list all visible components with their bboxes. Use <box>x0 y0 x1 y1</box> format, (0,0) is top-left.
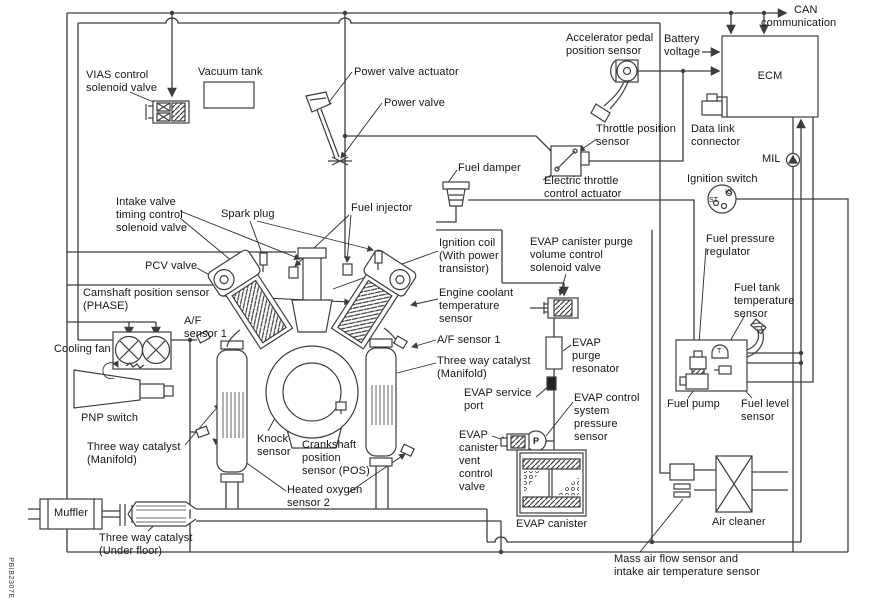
label-can-communication: CAN communication <box>761 4 836 30</box>
label-spark-plug: Spark plug <box>221 208 275 221</box>
fuel-damper-icon <box>443 182 469 206</box>
three-way-catalyst-underfloor-icon <box>128 502 196 526</box>
label-throttle-position-sensor: Throttle position sensor <box>596 123 676 149</box>
label-fuel-tank-temperature-sensor: Fuel tank temperature sensor <box>734 282 794 321</box>
mass-air-flow-sensor-icon <box>670 464 694 497</box>
electric-throttle-actuator-icon <box>551 146 589 176</box>
label-muffler: Muffler <box>54 507 88 520</box>
power-valve-actuator-icon <box>306 92 339 158</box>
evap-purge-resonator-icon <box>546 337 562 369</box>
label-fuel-injector: Fuel injector <box>351 202 412 215</box>
vias-solenoid-valve-icon <box>146 101 189 123</box>
label-evap-purge-volume-solenoid: EVAP canister purge volume control solen… <box>530 236 633 275</box>
evap-service-port-icon <box>547 377 556 390</box>
label-three-way-catalyst-under-floor: Three way catalyst (Under floor) <box>99 532 193 558</box>
label-cooling-fan: Cooling fan <box>54 343 111 356</box>
label-camshaft-position-sensor: Camshaft position sensor (PHASE) <box>83 287 210 313</box>
three-way-catalyst-right-icon <box>366 339 396 466</box>
label-fuel-pump: Fuel pump <box>667 398 720 411</box>
label-af-sensor-1-right: A/F sensor 1 <box>437 334 501 347</box>
air-cleaner-icon <box>694 456 788 512</box>
label-ig: IG <box>725 189 733 197</box>
vacuum-tank-icon <box>204 82 254 108</box>
label-intake-valve-timing-control: Intake valve timing control solenoid val… <box>116 196 187 235</box>
power-valve-icon <box>328 157 352 165</box>
label-fuel-level-sensor: Fuel level sensor <box>741 398 789 424</box>
evap-vent-valve-icon <box>501 434 529 450</box>
label-ignition-coil: Ignition coil (With power transistor) <box>439 237 499 276</box>
label-mass-air-flow-sensor: Mass air flow sensor and intake air temp… <box>614 553 760 579</box>
label-p-symbol: P <box>533 436 539 446</box>
cooling-fan-icon <box>113 332 171 369</box>
label-fuel-damper: Fuel damper <box>458 162 521 175</box>
evap-canister-icon <box>517 450 586 516</box>
label-engine-coolant-temp-sensor: Engine coolant temperature sensor <box>439 287 513 326</box>
mil-indicator-icon <box>787 154 800 167</box>
label-ignition-switch: Ignition switch <box>687 173 758 186</box>
label-t-symbol: T <box>717 348 721 356</box>
label-pcv-valve: PCV valve <box>145 260 197 273</box>
label-power-valve-actuator: Power valve actuator <box>354 66 459 79</box>
label-evap-control-pressure-sensor: EVAP control system pressure sensor <box>574 392 640 444</box>
evap-purge-solenoid-icon <box>544 298 578 318</box>
label-power-valve: Power valve <box>384 97 445 110</box>
label-af-sensor-1-left: A/F sensor 1 <box>184 315 227 341</box>
label-vias-control-solenoid-valve: VIAS control solenoid valve <box>86 69 157 95</box>
label-vacuum-tank: Vacuum tank <box>198 66 262 79</box>
label-heated-oxygen-sensor-2: Heated oxygen sensor 2 <box>287 484 362 510</box>
label-crankshaft-position-sensor: Crankshaft position sensor (POS) <box>302 439 370 478</box>
label-accelerator-pedal-position-sensor: Accelerator pedal position sensor <box>566 32 653 58</box>
label-three-way-catalyst-manifold-left: Three way catalyst (Manifold) <box>87 441 181 467</box>
label-evap-purge-resonator: EVAP purge resonator <box>572 337 619 376</box>
label-pnp-switch: PNP switch <box>81 412 138 425</box>
label-evap-service-port: EVAP service port <box>464 387 531 413</box>
label-three-way-catalyst-manifold-right: Three way catalyst (Manifold) <box>437 355 531 381</box>
label-ecm: ECM <box>722 70 818 83</box>
label-fuel-pressure-regulator: Fuel pressure regulator <box>706 233 775 259</box>
three-way-catalyst-left-icon <box>217 341 247 482</box>
figure-code: PBIB2307E <box>2 556 14 600</box>
intake-risers <box>303 258 321 300</box>
label-knock-sensor: Knock sensor <box>257 433 291 459</box>
label-battery-voltage: Battery voltage <box>664 33 700 59</box>
label-evap-canister-vent-valve: EVAP canister vent control valve <box>459 429 498 494</box>
accelerator-pedal-sensor-icon <box>591 60 638 122</box>
label-data-link-connector: Data link connector <box>691 123 740 149</box>
label-mil: MIL <box>762 153 781 166</box>
label-electric-throttle-control-actuator: Electric throttle control actuator <box>544 175 621 201</box>
label-air-cleaner: Air cleaner <box>712 516 766 529</box>
engine-control-system-diagram: VIAS control solenoid valve Vacuum tank … <box>0 0 879 607</box>
label-evap-canister: EVAP canister <box>516 518 587 531</box>
label-st: ST <box>709 197 718 205</box>
